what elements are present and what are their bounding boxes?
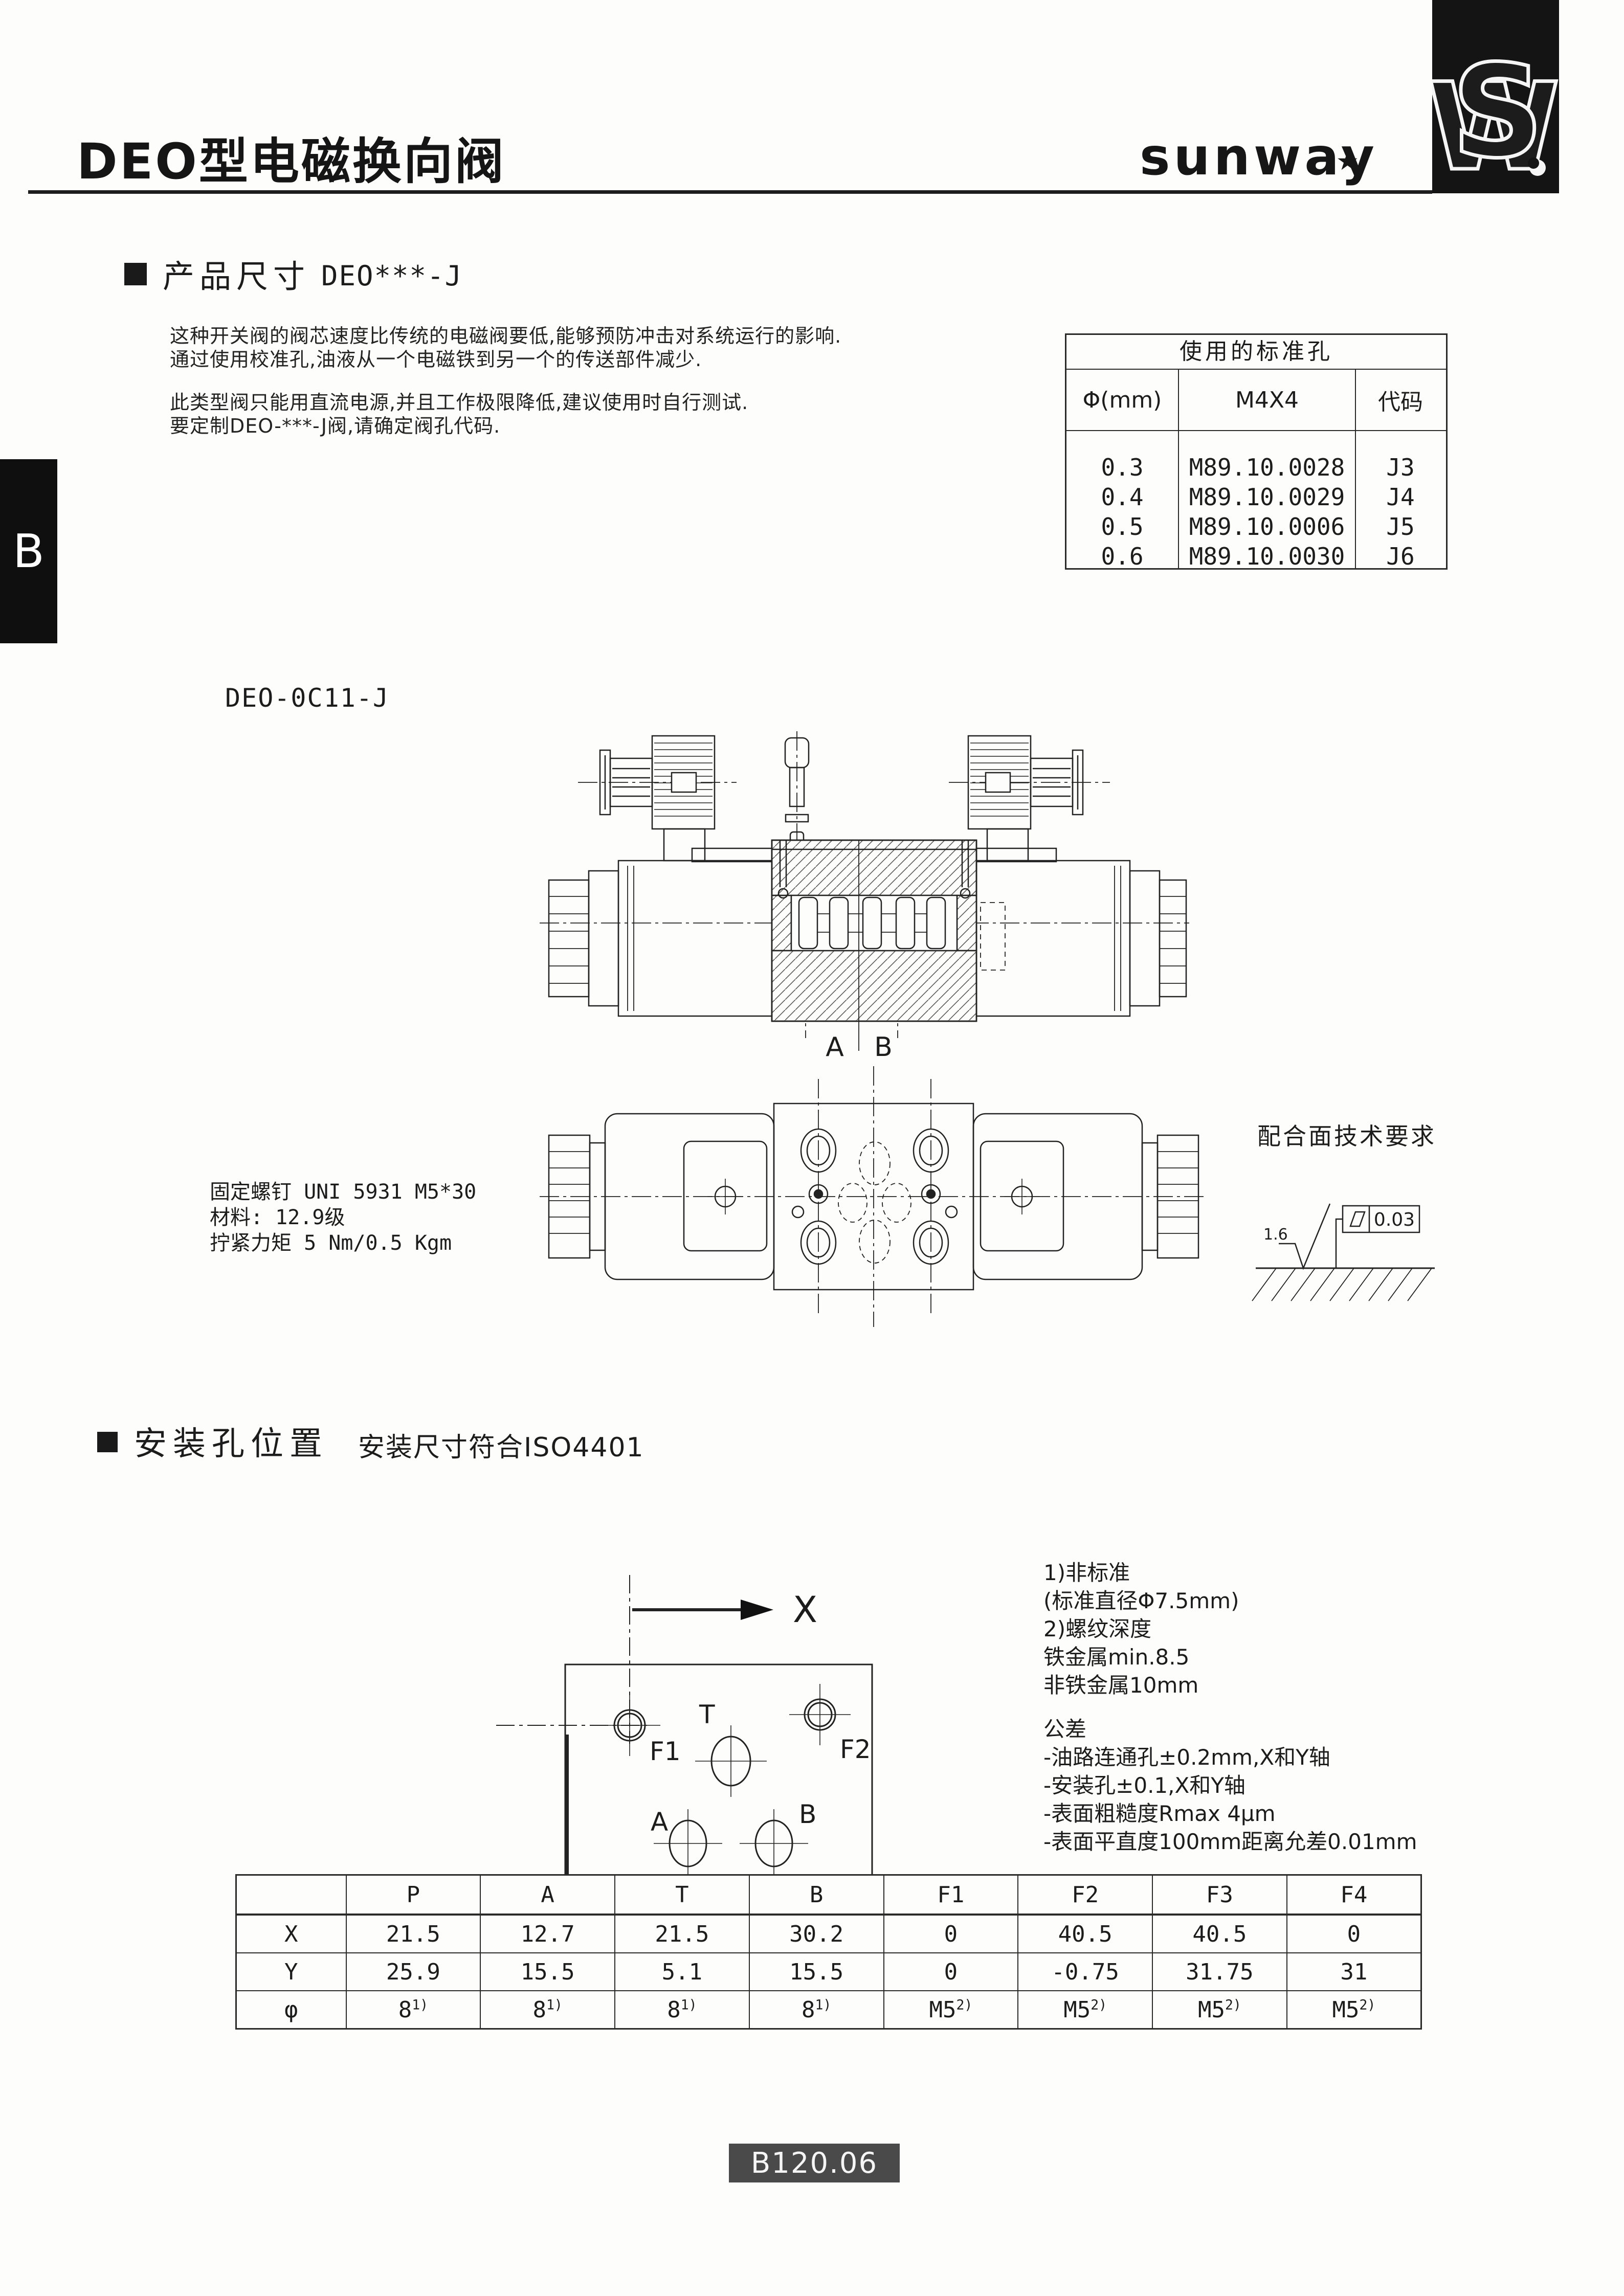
dimensions-table: PATBF1F2F3F4X21.512.721.530.2040.540.50Y… [235, 1874, 1422, 2030]
dim-col-header: F1 [884, 1875, 1018, 1915]
dim-col-header: T [615, 1875, 749, 1915]
dim-cell: 15.5 [749, 1953, 884, 1991]
std-hole-cell: M89.10.0030 [1179, 542, 1355, 571]
flatness-value: 0.03 [1374, 1209, 1415, 1230]
section1-title: 产品尺寸 [163, 251, 310, 297]
surface-finish-symbol-drawing: 1.6 0.03 [1248, 1176, 1442, 1309]
dim-cell: M52) [1018, 1991, 1152, 2029]
description-paragraph-1: 这种开关阀的阀芯速度比传统的电磁阀要低,能够预防冲击对系统运行的影响.通过使用校… [170, 324, 841, 371]
sw-monogram-icon: W S [1432, 0, 1559, 193]
dim-col-header: F4 [1287, 1875, 1421, 1915]
catalog-page: DEO型电磁换向阀 sunway ★ W S B 产品尺寸 DEO***-J 这… [0, 0, 1624, 2296]
title-rule [28, 190, 1432, 194]
code-column: J3J4J5J6 [1356, 431, 1445, 568]
dim-cell: 0 [1287, 1915, 1421, 1953]
dim-cell: 81) [749, 1991, 884, 2029]
text-line: -油路连通孔±0.2mm,X和Y轴 [1043, 1743, 1417, 1771]
text-line: -表面平直度100mm距离允差0.01mm [1043, 1828, 1417, 1856]
dim-col-header: P [346, 1875, 481, 1915]
std-hole-cell: 0.6 [1066, 542, 1178, 571]
dim-row: Y25.915.55.115.50-0.7531.7531 [236, 1953, 1421, 1991]
dimensions-table-wrap: PATBF1F2F3F4X21.512.721.530.2040.540.50Y… [235, 1874, 1422, 2030]
dim-cell: 15.5 [480, 1953, 615, 1991]
surface-requirement-title: 配合面技术要求 [1257, 1118, 1436, 1152]
dim-cell: 5.1 [615, 1953, 749, 1991]
text-line: 要定制DEO-***-J阀,请确定阀孔代码. [170, 414, 748, 438]
text-line: 铁金属min.8.5 [1043, 1643, 1239, 1671]
text-line: 材料: 12.9级 [210, 1205, 476, 1230]
description-paragraph-2: 此类型阀只能用直流电源,并且工作极限降低,建议使用时自行测试.要定制DEO-**… [170, 391, 748, 438]
std-hole-cell: J3 [1356, 453, 1445, 482]
text-line: 1)非标准 [1043, 1559, 1239, 1587]
dim-cell: 21.5 [615, 1915, 749, 1953]
dim-cell: M52) [884, 1991, 1018, 2029]
dim-col-header: A [480, 1875, 615, 1915]
text-line: 2)螺纹深度 [1043, 1615, 1239, 1643]
text-line: 通过使用校准孔,油液从一个电磁铁到另一个的传送部件减少. [170, 348, 841, 371]
axis-x-label: X [793, 1589, 817, 1631]
valve-top-view-drawing [540, 1064, 1205, 1330]
hole-label-t: T [699, 1700, 715, 1729]
page-number: B120.06 [751, 2147, 878, 2180]
standard-holes-table-header: Φ(mm) M4X4 代码 [1066, 370, 1446, 431]
text-line: (标准直径Φ7.5mm) [1043, 1587, 1239, 1615]
roughness-value: 1.6 [1263, 1226, 1288, 1244]
hole-label-a: A [651, 1807, 668, 1837]
col-header-m4x4: M4X4 [1179, 370, 1356, 430]
dim-cell: 40.5 [1018, 1915, 1152, 1953]
std-hole-cell: J6 [1356, 542, 1445, 571]
star-icon: ★ [1336, 146, 1359, 176]
text-line: -安装孔±0.1,X和Y轴 [1043, 1771, 1417, 1799]
std-hole-cell: M89.10.0028 [1179, 453, 1355, 482]
dim-row: X21.512.721.530.2040.540.50 [236, 1915, 1421, 1953]
standard-holes-table-title: 使用的标准孔 [1066, 335, 1446, 370]
col-header-diameter: Φ(mm) [1066, 370, 1179, 430]
dim-cell: 31.75 [1152, 1953, 1287, 1991]
standard-holes-table: 使用的标准孔 Φ(mm) M4X4 代码 0.30.40.50.6 M89.10… [1065, 333, 1448, 570]
dim-col-header: F3 [1152, 1875, 1287, 1915]
dim-cell: -0.75 [1018, 1953, 1152, 1991]
dim-row-label: Y [236, 1953, 346, 1991]
text-line: 公差 [1043, 1715, 1417, 1743]
dim-cell: 25.9 [346, 1953, 481, 1991]
dim-col-header: B [749, 1875, 884, 1915]
dim-cell: 0 [884, 1953, 1018, 1991]
dim-cell: M52) [1287, 1991, 1421, 2029]
dim-row-label: X [236, 1915, 346, 1953]
dim-cell: 81) [480, 1991, 615, 2029]
valve-side-section-drawing: A B [540, 724, 1189, 1061]
fixing-screw-notes: 固定螺钉 UNI 5931 M5*30材料: 12.9级拧紧力矩 5 Nm/0.… [210, 1179, 476, 1256]
dim-cell: 40.5 [1152, 1915, 1287, 1953]
text-line: 固定螺钉 UNI 5931 M5*30 [210, 1179, 476, 1205]
section-bullet-icon [97, 1432, 118, 1452]
dim-cell: 81) [615, 1991, 749, 2029]
page-number-badge: B120.06 [729, 2144, 900, 2182]
port-b-label: B [874, 1032, 893, 1061]
std-hole-cell: M89.10.0006 [1179, 512, 1355, 542]
port-a-label: A [826, 1032, 844, 1061]
hole-label-f1: F1 [650, 1737, 681, 1766]
dim-cell: 30.2 [749, 1915, 884, 1953]
text-line: 拧紧力矩 5 Nm/0.5 Kgm [210, 1230, 476, 1256]
dim-corner-cell [236, 1875, 346, 1915]
text-line: 非铁金属10mm [1043, 1671, 1239, 1699]
dim-cell: 21.5 [346, 1915, 481, 1953]
std-hole-cell: J4 [1356, 482, 1445, 512]
brand-logo: W S [1432, 0, 1559, 193]
std-hole-cell: 0.5 [1066, 512, 1178, 542]
diameter-column: 0.30.40.50.6 [1066, 431, 1179, 568]
std-hole-cell: 0.3 [1066, 453, 1178, 482]
dim-row-label: φ [236, 1991, 346, 2029]
valve-model-label: DEO-0C11-J [225, 683, 389, 713]
standard-holes-table-body: 0.30.40.50.6 M89.10.0028M89.10.0029M89.1… [1066, 431, 1446, 568]
section2-subtitle: 安装尺寸符合ISO4401 [358, 1426, 644, 1464]
dim-col-header: F2 [1018, 1875, 1152, 1915]
hole-label-f2: F2 [840, 1735, 871, 1764]
section2-title: 安装孔位置 [134, 1417, 328, 1465]
std-hole-cell: M89.10.0029 [1179, 482, 1355, 512]
dim-cell: 12.7 [480, 1915, 615, 1953]
std-hole-cell: 0.4 [1066, 482, 1178, 512]
section-bullet-icon [124, 263, 147, 285]
dim-row: φ81)81)81)81)M52)M52)M52)M52) [236, 1991, 1421, 2029]
text-line: -表面粗糙度Rmax 4μm [1043, 1799, 1417, 1828]
mounting-notes-1: 1)非标准(标准直径Φ7.5mm)2)螺纹深度铁金属min.8.5非铁金属10m… [1043, 1559, 1239, 1699]
hole-label-b: B [799, 1799, 816, 1829]
section1-subtitle: DEO***-J [321, 260, 462, 292]
part-number-column: M89.10.0028M89.10.0029M89.10.0006M89.10.… [1179, 431, 1356, 568]
chapter-tab-label: B [13, 525, 45, 578]
dim-cell: 0 [884, 1915, 1018, 1953]
dim-cell: 31 [1287, 1953, 1421, 1991]
dim-cell: M52) [1152, 1991, 1287, 2029]
std-hole-cell: J5 [1356, 512, 1445, 542]
mounting-notes-tolerances: 公差-油路连通孔±0.2mm,X和Y轴-安装孔±0.1,X和Y轴-表面粗糙度Rm… [1043, 1715, 1417, 1856]
chapter-tab: B [0, 459, 57, 643]
text-line: 这种开关阀的阀芯速度比传统的电磁阀要低,能够预防冲击对系统运行的影响. [170, 324, 841, 348]
dim-cell: 81) [346, 1991, 481, 2029]
text-line: 此类型阀只能用直流电源,并且工作极限降低,建议使用时自行测试. [170, 391, 748, 414]
col-header-code: 代码 [1356, 370, 1445, 430]
page-title: DEO型电磁换向阀 [77, 122, 506, 193]
